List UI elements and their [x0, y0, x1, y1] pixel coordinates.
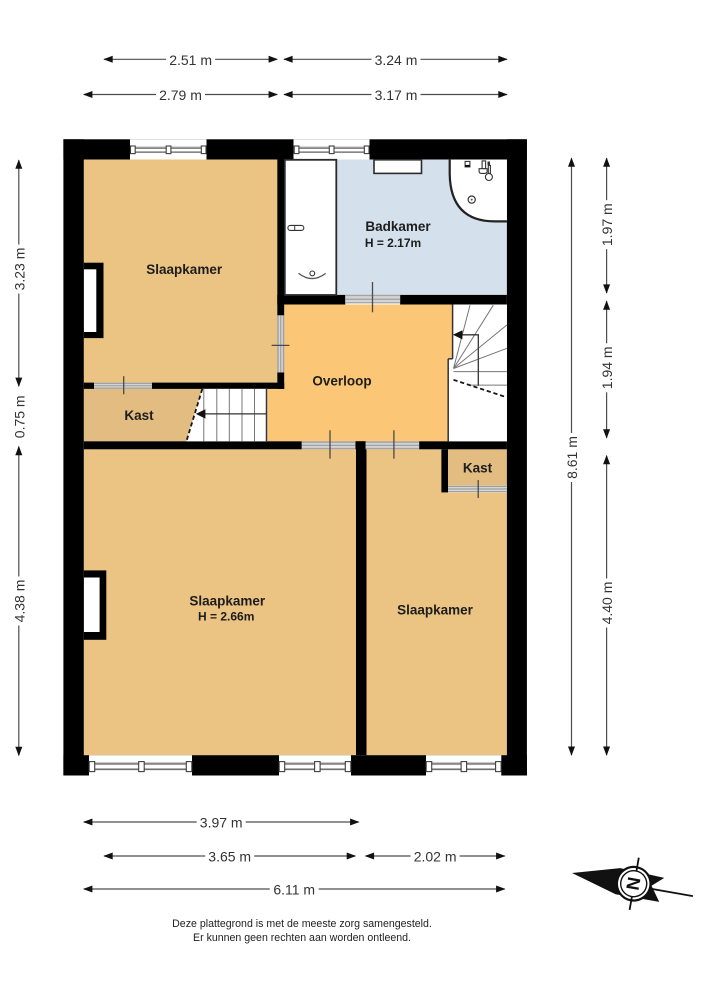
svg-text:Badkamer: Badkamer	[365, 219, 431, 234]
svg-text:Kast: Kast	[463, 461, 493, 476]
svg-text:H = 2.17m: H = 2.17m	[365, 236, 421, 250]
svg-text:6.11 m: 6.11 m	[273, 882, 315, 898]
svg-text:2.79 m: 2.79 m	[159, 87, 202, 103]
svg-text:Slaapkamer: Slaapkamer	[146, 262, 223, 277]
svg-text:Deze plattegrond is met de mee: Deze plattegrond is met de meeste zorg s…	[172, 918, 432, 930]
svg-text:0.75 m: 0.75 m	[11, 395, 27, 438]
svg-text:3.23 m: 3.23 m	[11, 248, 27, 291]
svg-text:1.94 m: 1.94 m	[599, 346, 615, 389]
svg-text:4.40 m: 4.40 m	[599, 582, 615, 625]
svg-text:1.97 m: 1.97 m	[599, 203, 615, 246]
svg-text:3.65 m: 3.65 m	[208, 849, 251, 865]
svg-text:3.17 m: 3.17 m	[375, 87, 418, 103]
svg-text:8.61 m: 8.61 m	[564, 436, 580, 479]
svg-text:2.51 m: 2.51 m	[169, 52, 212, 68]
svg-text:H = 2.66m: H = 2.66m	[198, 610, 254, 624]
svg-text:Slaapkamer: Slaapkamer	[189, 593, 266, 608]
svg-text:Overloop: Overloop	[312, 373, 371, 388]
svg-text:Slaapkamer: Slaapkamer	[397, 602, 474, 617]
svg-text:2.02 m: 2.02 m	[414, 849, 457, 865]
svg-text:Kast: Kast	[124, 408, 154, 423]
svg-text:3.97 m: 3.97 m	[200, 815, 243, 831]
svg-text:3.24 m: 3.24 m	[375, 52, 418, 68]
svg-text:Er kunnen geen rechten aan wor: Er kunnen geen rechten aan worden ontlee…	[193, 932, 411, 944]
svg-text:4.38 m: 4.38 m	[11, 580, 27, 623]
